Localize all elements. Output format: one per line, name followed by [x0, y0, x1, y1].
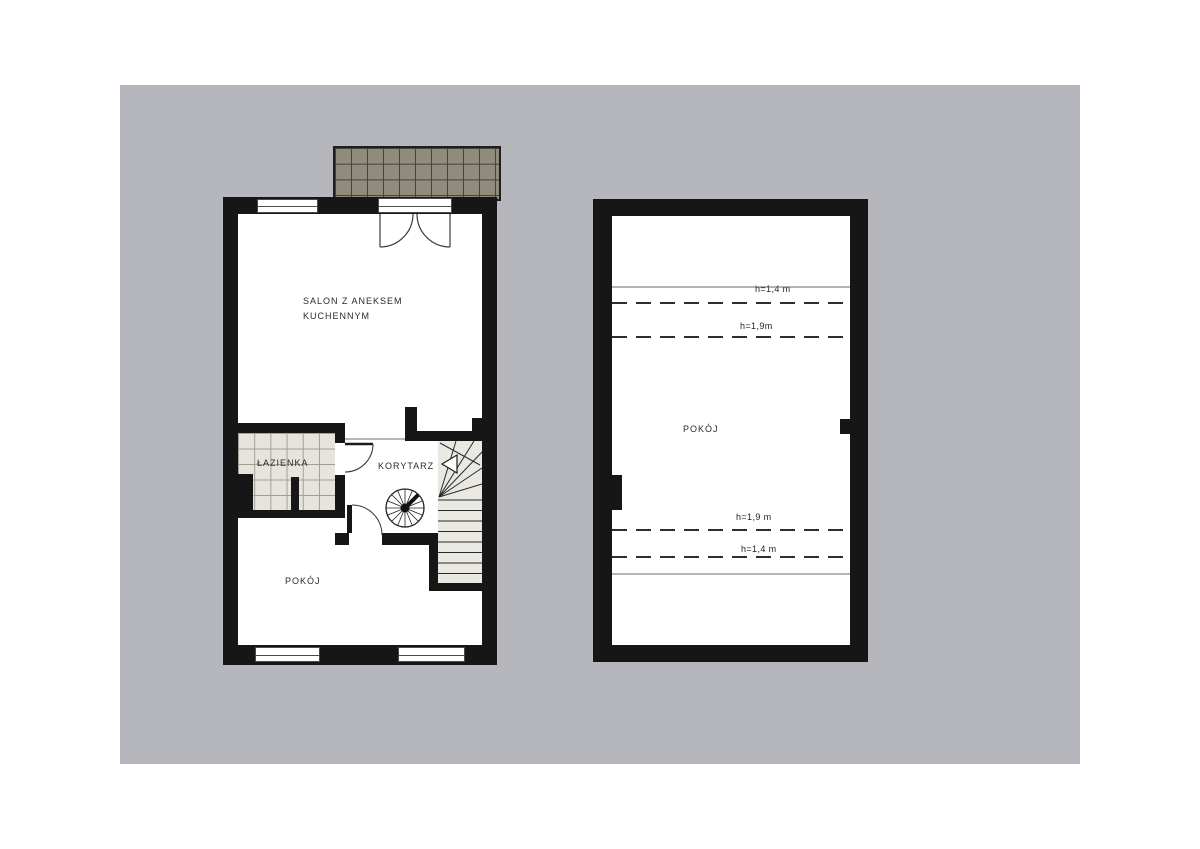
- room-label-pokoj-ground: POKÓJ: [285, 576, 321, 586]
- wall-corridor-bottom-right: [382, 533, 438, 545]
- salon-label-line2: KUCHENNYM: [303, 309, 403, 324]
- wall-stair-top: [405, 431, 473, 441]
- height-annotation-2: h=1,9m: [740, 321, 773, 331]
- staircase: [438, 441, 482, 583]
- salon-label-line1: SALON Z ANEKSEM: [303, 294, 403, 309]
- wall-stub-attic-left: [610, 475, 622, 510]
- wall-right-stub: [472, 418, 482, 441]
- wall-bathroom-top: [223, 423, 345, 433]
- balcony-door-opening: [378, 198, 452, 213]
- room-label-salon: SALON Z ANEKSEM KUCHENNYM: [303, 294, 403, 323]
- wall-stub-attic-right: [840, 419, 852, 434]
- room-label-corridor: KORYTARZ: [378, 461, 434, 471]
- height-annotation-1: h=1,4 m: [755, 284, 791, 294]
- window-bottom-right: [398, 647, 465, 662]
- window-top-left: [257, 199, 318, 213]
- height-annotation-3: h=1,9 m: [736, 512, 772, 522]
- wall-corridor-bottom-left: [335, 533, 349, 545]
- wall-bathroom-east-upper: [335, 423, 345, 443]
- duct-stub-left: [238, 474, 253, 518]
- bathroom-partition: [291, 477, 299, 518]
- interior-attic: [612, 216, 850, 645]
- terrace-tiled-area: [333, 146, 501, 201]
- floor-plan-sheet: SALON Z ANEKSEM KUCHENNYM ŁAZIENKA KORYT…: [0, 0, 1200, 849]
- height-annotation-4: h=1,4 m: [741, 544, 777, 554]
- window-bottom-left: [255, 647, 320, 662]
- wall-stair-box-bottom: [429, 583, 483, 591]
- room-label-pokoj-attic: POKÓJ: [683, 424, 719, 434]
- room-label-bathroom: ŁAZIENKA: [257, 458, 309, 468]
